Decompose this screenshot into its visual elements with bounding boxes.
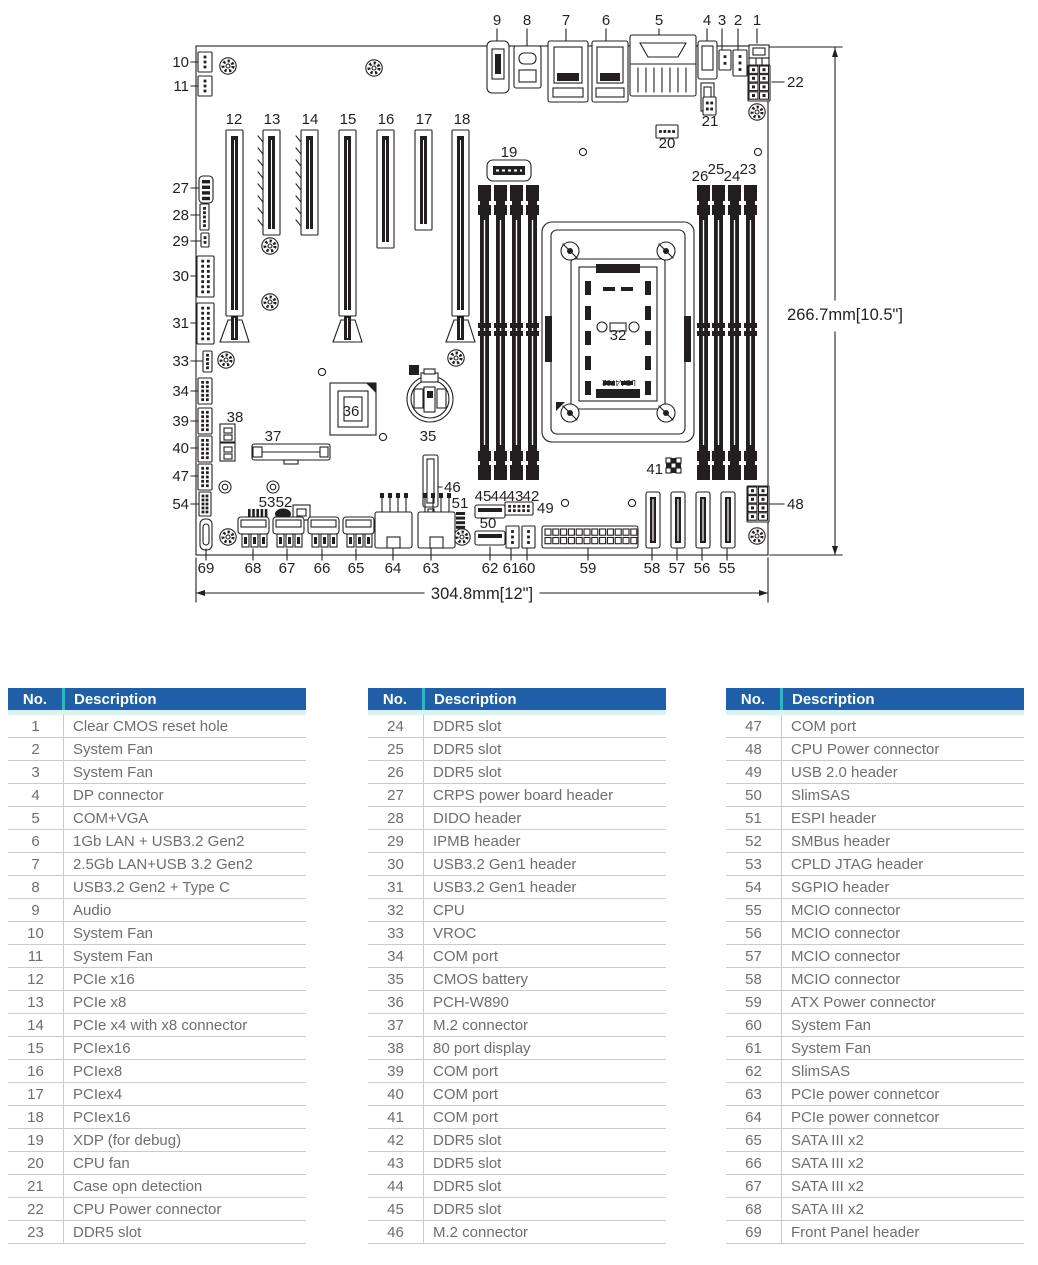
row-desc-cell: COM port	[424, 1106, 667, 1129]
callout-53: 53	[259, 494, 276, 511]
com41-cell	[671, 468, 676, 473]
callout-27: 27	[172, 180, 189, 197]
com-header-40-pin	[201, 439, 204, 442]
seg	[224, 435, 232, 440]
row-number-cell: 12	[8, 968, 64, 991]
callout-34: 34	[172, 383, 189, 400]
ddr-key	[744, 323, 757, 328]
row-desc-cell: ATX Power connector	[782, 991, 1025, 1014]
row-desc-cell: SMBus header	[782, 830, 1025, 853]
legend-row: 30USB3.2 Gen1 header	[368, 853, 666, 876]
row-number-cell: 66	[726, 1152, 782, 1175]
system-fan-header-10-pin	[204, 56, 207, 59]
sgpio-header-54-pin	[202, 495, 205, 498]
cpu-power-connector-22-pin	[752, 85, 755, 88]
row-desc-cell: System Fan	[64, 738, 307, 761]
usb3-header-30-pin	[201, 280, 204, 283]
atx-cell	[607, 529, 613, 535]
sgpio-header-54-body	[199, 492, 211, 516]
sata-tooth-pin	[279, 537, 282, 544]
com-header-39-pin	[201, 415, 204, 418]
m2-standoff	[284, 460, 298, 464]
row-desc-cell: 2.5Gb LAN+USB 3.2 Gen2	[64, 853, 307, 876]
callout-56: 56	[694, 560, 711, 577]
ddr-key	[510, 323, 523, 328]
callout-13: 13	[264, 111, 281, 128]
row-desc-cell: CMOS battery	[424, 968, 667, 991]
row-number-cell: 54	[726, 876, 782, 899]
com-header-40-pin	[206, 456, 209, 459]
legend-row: 4DP connector	[8, 784, 306, 807]
cpu-power-connector-22-pin	[763, 85, 766, 88]
callout-33: 33	[172, 353, 189, 370]
com-header-47-pin	[201, 476, 204, 479]
ddr-cap	[510, 205, 523, 215]
row-number-cell: 4	[8, 784, 64, 807]
espi-bar	[456, 526, 465, 529]
row-number-cell: 22	[8, 1198, 64, 1221]
espi-bar	[456, 521, 465, 524]
com-header-39-pin	[206, 428, 209, 431]
ddr-key	[494, 331, 507, 336]
com-header-47-pin	[206, 471, 209, 474]
cpu-power-connector-22-pin	[752, 68, 755, 71]
callout-28: 28	[172, 207, 189, 224]
ddr-key	[728, 323, 741, 328]
socket-pin	[645, 281, 651, 295]
callout-38: 38	[227, 409, 244, 426]
system-fan-header-11-pin	[204, 80, 207, 83]
sgpio-header-54-pin	[202, 499, 205, 502]
row-desc-cell: DP connector	[64, 784, 307, 807]
socket-pin	[645, 381, 651, 395]
row-desc-cell: Clear CMOS reset hole	[64, 713, 307, 738]
ddr-key	[478, 331, 491, 336]
legend-row: 68SATA III x2	[726, 1198, 1024, 1221]
system-fan-header-60	[522, 526, 535, 548]
legend-row: 48CPU Power connector	[726, 738, 1024, 761]
atx-cell	[576, 538, 582, 544]
socket-pin	[585, 281, 591, 295]
crps-header-27	[199, 176, 213, 203]
battery-holder	[424, 387, 435, 412]
ppow-pin-tip	[423, 493, 427, 498]
legend-row: 69Front Panel header	[726, 1221, 1024, 1244]
legend-table-head: No.Description	[368, 688, 666, 713]
system-fan-header-2-pin	[739, 55, 742, 58]
mounting-hole	[220, 58, 236, 74]
sgpio-header-54-pin	[202, 507, 205, 510]
usb3-header-31-pin	[201, 332, 204, 335]
callout-4: 4	[703, 12, 711, 29]
callout-29: 29	[172, 233, 189, 250]
com-header-34-pin	[201, 385, 204, 388]
row-number-cell: 42	[368, 1129, 424, 1152]
system-fan-header-61-pin	[511, 541, 514, 544]
com-header-39-pin	[206, 411, 209, 414]
col-desc-header: Description	[64, 688, 307, 713]
cpu-power-connector-48	[747, 486, 769, 522]
hole-center	[755, 534, 759, 538]
sgpio-header-54	[199, 492, 211, 516]
row-desc-cell: SATA III x2	[782, 1129, 1025, 1152]
com41-cell	[666, 468, 671, 473]
com-header-40-pin	[201, 448, 204, 451]
socket-pad	[603, 287, 615, 291]
legend-row: 59ATX Power connector	[726, 991, 1024, 1014]
legend-row: 3880 port display	[368, 1037, 666, 1060]
callout-66: 66	[314, 560, 331, 577]
row-number-cell: 50	[726, 784, 782, 807]
callout-52: 52	[276, 494, 293, 511]
row-desc-cell: CPLD JTAG header	[782, 853, 1025, 876]
callout-65: 65	[348, 560, 365, 577]
system-fan-header-60-pin	[527, 541, 530, 544]
legend-row: 25DDR5 slot	[368, 738, 666, 761]
board-height-dimension-label: 266.7mm[10.5"]	[787, 306, 903, 324]
row-number-cell: 67	[726, 1175, 782, 1198]
usb3-header-30-pin	[201, 265, 204, 268]
row-number-cell: 35	[368, 968, 424, 991]
system-fan-header-61-pin	[511, 536, 514, 539]
system-fan-header-11-pin	[204, 90, 207, 93]
callout-40: 40	[172, 440, 189, 457]
vroc-header-33-pin	[206, 366, 209, 369]
ipmb-header-29-body	[201, 233, 209, 247]
row-desc-cell: PCIex16	[64, 1106, 307, 1129]
ppow-pin-tip	[439, 493, 443, 498]
callout-44: 44	[491, 488, 508, 505]
system-fan-header-2-pin	[739, 68, 742, 71]
row-desc-cell: DDR5 slot	[64, 1221, 307, 1244]
row-desc-cell: CPU Power connector	[64, 1198, 307, 1221]
sgpio-header-54-pin	[206, 507, 209, 510]
sata-connector-68	[238, 517, 269, 547]
atx-cell	[592, 538, 598, 544]
slimsas-slot	[478, 534, 502, 538]
callout-69: 69	[198, 560, 215, 577]
motherboard-manual-page: LGA4702304.8mm[12"]266.7mm[10.5"]9876543…	[0, 0, 1038, 1265]
fp-slot	[203, 524, 209, 545]
com-header-47-pin	[206, 480, 209, 483]
row-number-cell: 63	[726, 1083, 782, 1106]
usb3-header-31-pin	[207, 312, 210, 315]
row-desc-cell: USB3.2 Gen2 + Type C	[64, 876, 307, 899]
callout-58: 58	[644, 560, 661, 577]
ddr-cap	[697, 185, 710, 201]
atx-power-connector-59	[542, 526, 638, 548]
vroc-header-33	[203, 351, 212, 372]
ddr-cap	[478, 465, 491, 480]
row-number-cell: 25	[368, 738, 424, 761]
usb2-header-49-pin	[527, 509, 530, 512]
com-header-34-pin	[206, 390, 209, 393]
row-desc-cell: PCIex16	[64, 1037, 307, 1060]
case-open-header-21-pin	[706, 108, 709, 111]
callout-61: 61	[503, 560, 520, 577]
legend-row: 64PCIe power connetcor	[726, 1106, 1024, 1129]
row-number-cell: 58	[726, 968, 782, 991]
sata-tooth-pin	[262, 537, 265, 544]
row-number-cell: 55	[726, 899, 782, 922]
row-number-cell: 57	[726, 945, 782, 968]
row-desc-cell: PCIe x8	[64, 991, 307, 1014]
board-diagram: LGA4702304.8mm[12"]266.7mm[10.5"]9876543…	[0, 0, 1038, 660]
ddr-key	[494, 323, 507, 328]
lan6-contacts	[600, 73, 620, 81]
cpu-power-connector-22-pin	[763, 77, 766, 80]
legend-table-head: No.Description	[726, 688, 1024, 713]
row-desc-cell: IPMB header	[424, 830, 667, 853]
row-number-cell: 45	[368, 1198, 424, 1221]
legend-row: 65SATA III x2	[726, 1129, 1024, 1152]
sgpio-header-54-pin	[202, 503, 205, 506]
cpu-power-connector-22-pin	[763, 68, 766, 71]
ddr-cap	[728, 451, 741, 461]
sata-slot	[346, 520, 371, 527]
legend-row: 13PCIe x8	[8, 991, 306, 1014]
callout-20: 20	[659, 135, 676, 152]
row-number-cell: 13	[8, 991, 64, 1014]
callout-41: 41	[646, 461, 663, 478]
row-desc-cell: 1Gb LAN + USB3.2 Gen2	[64, 830, 307, 853]
ppow-pin-tip	[388, 493, 392, 498]
dido-header-28-pin	[203, 220, 206, 223]
row-number-cell: 6	[8, 830, 64, 853]
usb2-header-49-pin	[518, 509, 521, 512]
seg	[224, 447, 232, 452]
callout-49: 49	[537, 500, 554, 517]
ddr-cap	[494, 205, 507, 215]
atx-cell	[545, 529, 551, 535]
ppow-pin-tip	[431, 493, 435, 498]
callout-5: 5	[655, 12, 663, 29]
row-desc-cell: System Fan	[782, 1014, 1025, 1037]
socket-pin	[585, 306, 591, 320]
usb3-header-30-pin	[207, 275, 210, 278]
callout-60: 60	[519, 560, 536, 577]
legend-row: 61Gb LAN + USB3.2 Gen2	[8, 830, 306, 853]
cpu-fan-header-20-pin	[659, 130, 662, 133]
com-header-34-pin	[201, 398, 204, 401]
legend-table-body: 47COM port48CPU Power connector49USB 2.0…	[726, 713, 1024, 1244]
com-header-40	[198, 436, 212, 462]
legend-row: 5COM+VGA	[8, 807, 306, 830]
lan-usb-port-6	[592, 41, 628, 102]
socket-text: LGA4702	[602, 378, 636, 387]
cpu-power-connector-48-pin	[762, 489, 765, 492]
atx-cell	[600, 529, 606, 535]
legend-table-body: 1Clear CMOS reset hole2System Fan3System…	[8, 713, 306, 1244]
row-number-cell: 46	[368, 1221, 424, 1244]
battery-clip-top2	[424, 369, 435, 374]
legend-row: 39COM port	[368, 1060, 666, 1083]
sata-tooth-pin	[358, 537, 361, 544]
row-number-cell: 62	[726, 1060, 782, 1083]
row-number-cell: 8	[8, 876, 64, 899]
legend-row: 51ESPI header	[726, 807, 1024, 830]
com41-cell	[676, 468, 681, 473]
row-number-cell: 19	[8, 1129, 64, 1152]
legend-row: 61System Fan	[726, 1037, 1024, 1060]
legend-row: 57MCIO connector	[726, 945, 1024, 968]
sata-tooth-pin	[349, 537, 352, 544]
usb2-header-49-pin	[508, 505, 511, 508]
vroc-header-33-pin	[206, 354, 209, 357]
cpu-power-connector-48-pin	[751, 506, 754, 509]
legend-table-2: No.Description24DDR5 slot25DDR5 slot26DD…	[368, 688, 666, 1244]
callout-21: 21	[702, 113, 719, 130]
mounting-hole	[366, 60, 382, 76]
row-number-cell: 21	[8, 1175, 64, 1198]
row-desc-cell: CPU fan	[64, 1152, 307, 1175]
row-number-cell: 52	[726, 830, 782, 853]
cpu-power-connector-48-pin	[762, 498, 765, 501]
ddr-cap	[697, 465, 710, 480]
callout-19: 19	[501, 144, 518, 161]
legend-row: 49USB 2.0 header	[726, 761, 1024, 784]
cpu-power-connector-22-pin	[752, 94, 755, 97]
case-open-header-21-pin	[706, 102, 709, 105]
row-number-cell: 64	[726, 1106, 782, 1129]
com41-cell	[671, 458, 676, 463]
dido-header-28-pin	[203, 211, 206, 214]
row-number-cell: 47	[726, 713, 782, 738]
com-header-39-pin	[201, 428, 204, 431]
com-header-39-pin	[206, 415, 209, 418]
cmos-hole	[753, 48, 765, 55]
row-desc-cell: Audio	[64, 899, 307, 922]
usb3-header-31-pin	[207, 322, 210, 325]
legend-row: 19XDP (for debug)	[8, 1129, 306, 1152]
com-header-40-pin	[206, 448, 209, 451]
row-number-cell: 48	[726, 738, 782, 761]
callout-43: 43	[507, 488, 524, 505]
legend-row: 40COM port	[368, 1083, 666, 1106]
system-fan-header-3-body	[719, 50, 731, 70]
callout-45: 45	[475, 488, 492, 505]
legend-row: 17PCIex4	[8, 1083, 306, 1106]
hole-center	[268, 244, 272, 248]
row-number-cell: 68	[726, 1198, 782, 1221]
row-number-cell: 43	[368, 1152, 424, 1175]
com-header-34-pin	[206, 394, 209, 397]
vga-com-port	[630, 35, 696, 96]
callout-2: 2	[734, 12, 742, 29]
crps-pin	[202, 191, 210, 194]
sata-tooth-pin	[244, 537, 247, 544]
usb3-header-31-body	[197, 303, 214, 344]
row-desc-cell: COM port	[424, 945, 667, 968]
system-fan-header-3-pin	[724, 62, 727, 65]
com-header-47-pin	[201, 480, 204, 483]
sata-slot	[241, 520, 266, 527]
atx-cell	[568, 529, 574, 535]
usb3-header-31-pin	[207, 337, 210, 340]
system-fan-header-11-pin	[204, 85, 207, 88]
com41-cell	[666, 458, 671, 463]
row-desc-cell: MCIO connector	[782, 968, 1025, 991]
atx-cell	[623, 529, 629, 535]
dido-header-28-pin	[203, 207, 206, 210]
row-desc-cell: DDR5 slot	[424, 1152, 667, 1175]
row-desc-cell: ESPI header	[782, 807, 1025, 830]
atx-cell	[615, 529, 621, 535]
row-number-cell: 34	[368, 945, 424, 968]
ddr-cap	[478, 451, 491, 461]
legend-row: 2System Fan	[8, 738, 306, 761]
com41-cell	[676, 463, 681, 468]
com41-cell	[676, 458, 681, 463]
com-header-40-pin	[201, 456, 204, 459]
com-header-47-body	[198, 464, 212, 490]
legend-row: 42DDR5 slot	[368, 1129, 666, 1152]
row-desc-cell: Front Panel header	[782, 1221, 1025, 1244]
legend-row: 21Case opn detection	[8, 1175, 306, 1198]
usb2-header-49-pin	[508, 509, 511, 512]
row-desc-cell: USB3.2 Gen1 header	[424, 876, 667, 899]
ddr-cap	[697, 205, 710, 215]
system-fan-header-10-pin	[204, 61, 207, 64]
ddr-cap	[510, 465, 523, 480]
callout-46: 46	[444, 479, 461, 496]
callout-59: 59	[580, 560, 597, 577]
usb3-header-31-pin	[207, 332, 210, 335]
com-header-47-pin	[201, 467, 204, 470]
cpu-fan-header-20-pin	[668, 130, 671, 133]
cpu-power-connector-48-pin	[762, 506, 765, 509]
hole-center	[226, 535, 230, 539]
sata-tooth-pin	[297, 537, 300, 544]
com-header-34-body	[198, 378, 212, 404]
row-number-cell: 28	[368, 807, 424, 830]
mcio-connector-57	[671, 492, 685, 548]
row-number-cell: 60	[726, 1014, 782, 1037]
hole-center	[454, 356, 458, 360]
row-desc-cell: 80 port display	[424, 1037, 667, 1060]
com41-cell	[666, 463, 671, 468]
row-desc-cell: SlimSAS	[782, 784, 1025, 807]
crps-pin	[202, 180, 210, 183]
callout-30: 30	[172, 268, 189, 285]
usb2-header-49-pin	[513, 509, 516, 512]
row-number-cell: 38	[368, 1037, 424, 1060]
row-number-cell: 69	[726, 1221, 782, 1244]
legend-row: 22CPU Power connector	[8, 1198, 306, 1221]
row-desc-cell: CPU Power connector	[782, 738, 1025, 761]
ddr-cap	[744, 205, 757, 215]
legend-row: 18PCIex16	[8, 1106, 306, 1129]
sata-connector-66	[308, 517, 339, 547]
callout-17: 17	[416, 111, 433, 128]
legend-row: 55MCIO connector	[726, 899, 1024, 922]
row-number-cell: 37	[368, 1014, 424, 1037]
row-number-cell: 15	[8, 1037, 64, 1060]
dido-header-28-pin	[203, 224, 206, 227]
callout-6: 6	[602, 12, 610, 29]
com-header-39-pin	[201, 420, 204, 423]
usb2-header-49-pin	[513, 505, 516, 508]
usb3-header-31-pin	[201, 327, 204, 330]
mounting-hole	[220, 529, 236, 545]
lan7-contacts	[557, 73, 579, 81]
row-number-cell: 59	[726, 991, 782, 1014]
dp-slot	[702, 46, 713, 70]
usb3-header-31-pin	[201, 307, 204, 310]
com-header-34-pin	[201, 390, 204, 393]
com-header-47-pin	[206, 484, 209, 487]
atx-cell	[561, 538, 567, 544]
